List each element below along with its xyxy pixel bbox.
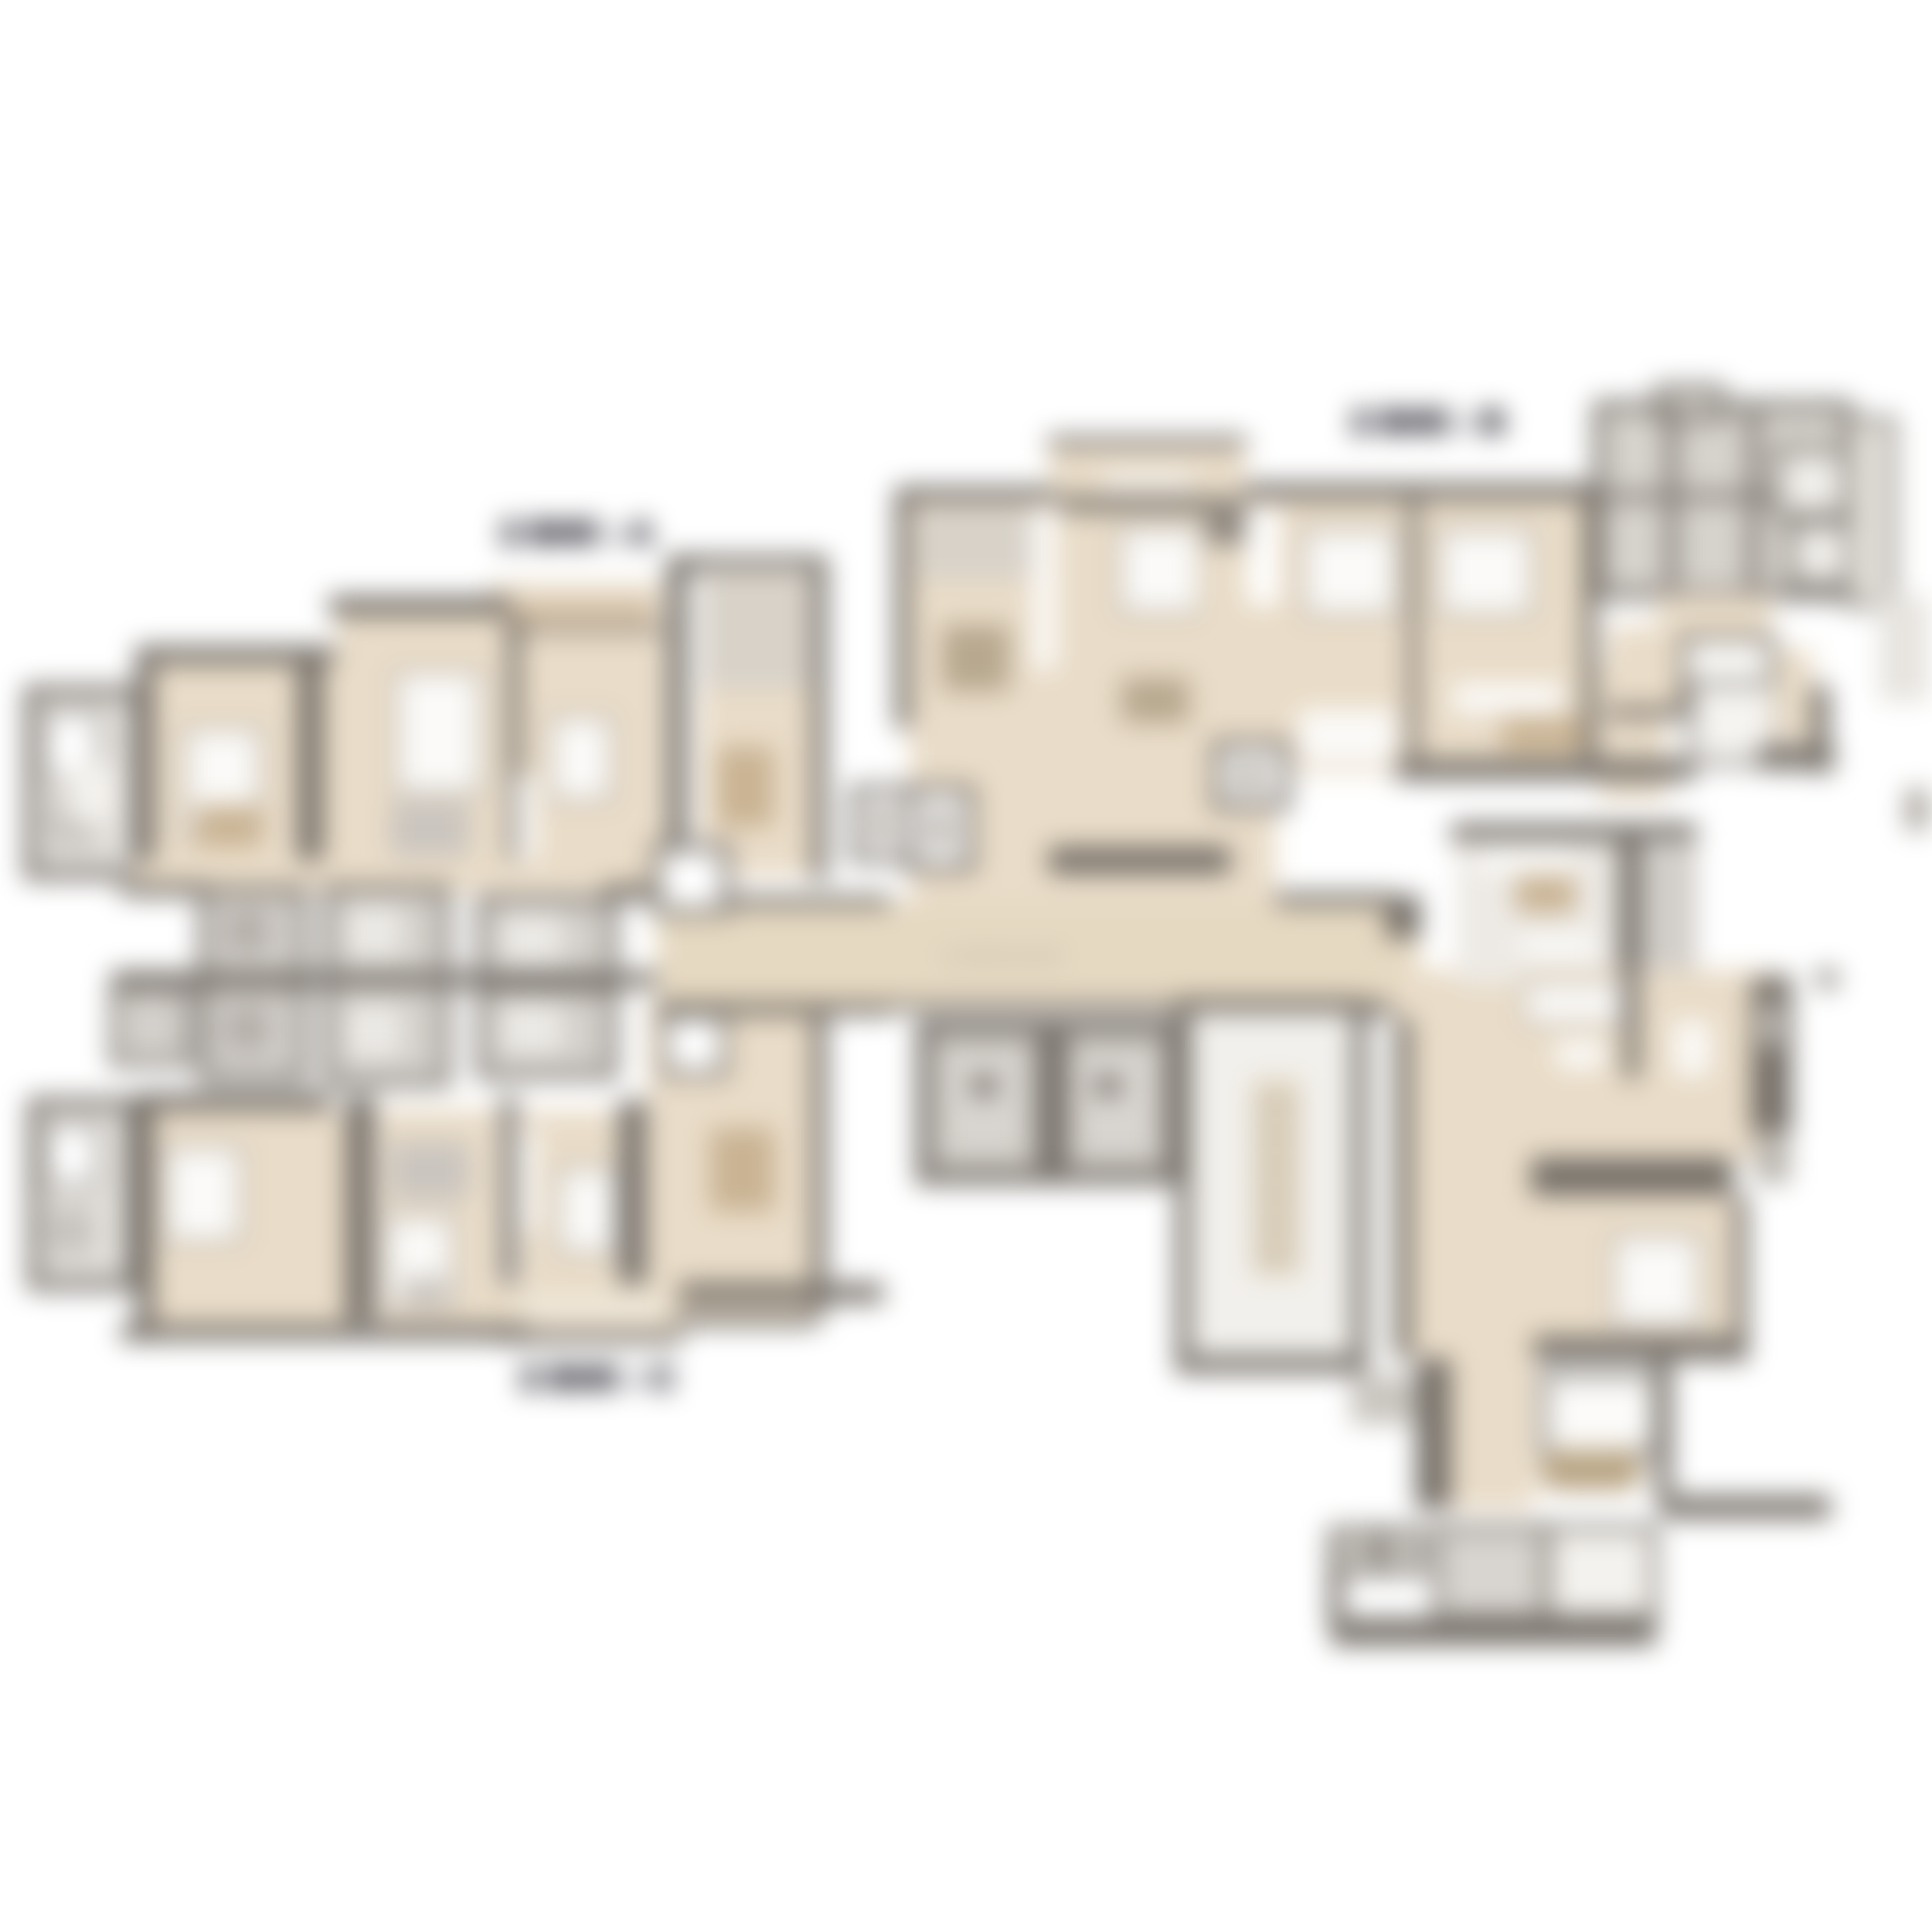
svg-text:2 BHK - C: 2 BHK - C bbox=[521, 1360, 675, 1395]
svg-text:CORRIDOR: CORRIDOR bbox=[943, 947, 1066, 968]
svg-text:2 BHK - B: 2 BHK - B bbox=[1352, 404, 1506, 439]
svg-text:2 BHK - A: 2 BHK - A bbox=[501, 515, 653, 550]
